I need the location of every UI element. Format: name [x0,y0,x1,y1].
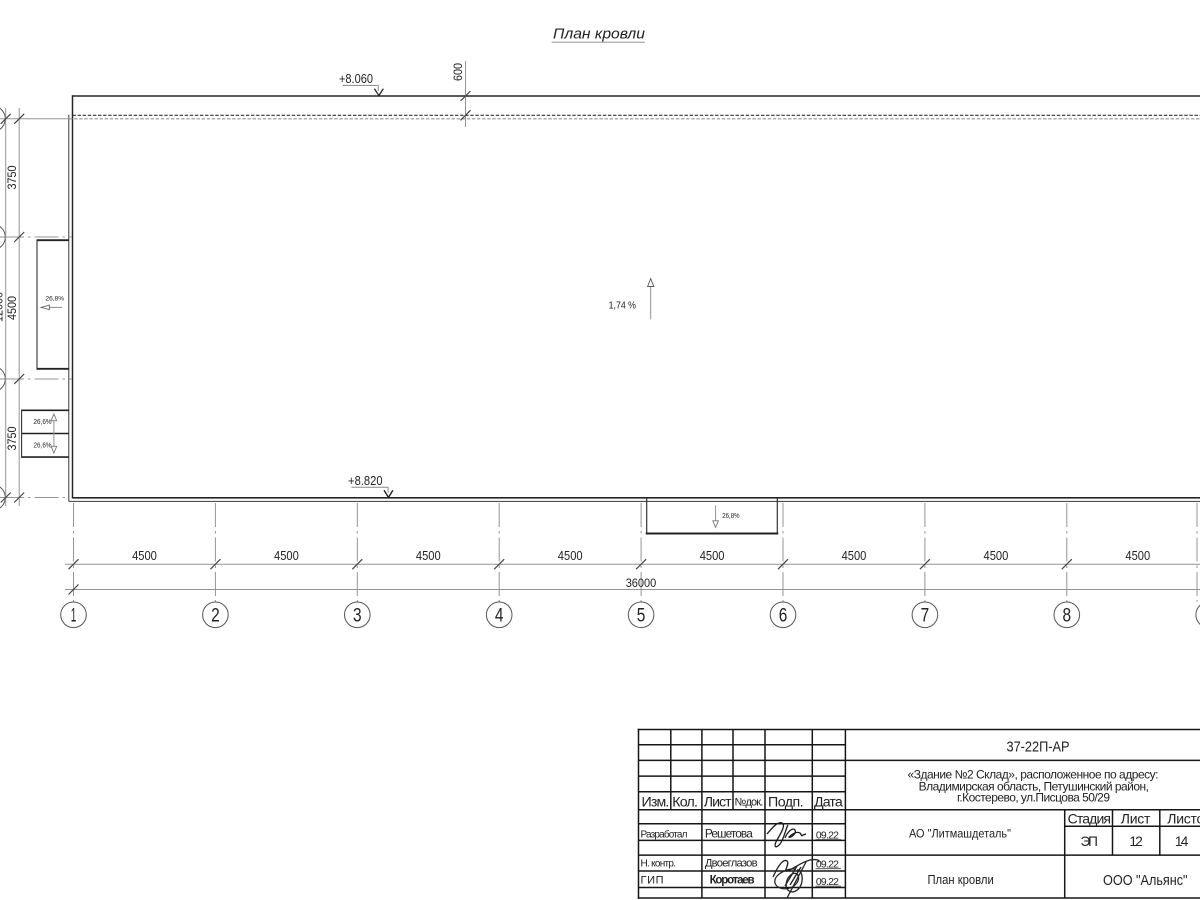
svg-text:ООО "Альянс": ООО "Альянс" [1103,873,1188,889]
svg-text:4500: 4500 [274,549,299,563]
svg-text:Лист: Лист [704,795,732,811]
svg-text:3750: 3750 [5,426,19,450]
svg-text:600: 600 [451,63,465,81]
svg-text:План кровли: План кровли [553,26,646,43]
svg-text:Двоеглазов: Двоеглазов [705,858,758,870]
svg-text:5: 5 [637,605,646,627]
svg-text:Коротаев: Коротаев [710,875,755,887]
svg-text:4500: 4500 [416,549,441,563]
svg-text:3750: 3750 [5,165,19,189]
svg-text:Кол.: Кол. [672,795,698,811]
svg-text:АО "Литмашдеталь": АО "Литмашдеталь" [909,827,1011,841]
svg-text:Решетова: Решетова [705,827,753,841]
svg-text:+8.820: +8.820 [348,474,383,488]
svg-text:26,6%: 26,6% [34,441,53,449]
svg-text:4500: 4500 [842,549,867,563]
svg-text:Листов: Листов [1167,811,1200,827]
svg-text:14: 14 [1175,834,1189,849]
svg-text:6: 6 [779,605,788,627]
svg-text:12: 12 [1129,834,1142,849]
svg-text:Дата: Дата [814,795,843,811]
svg-text:1,74 %: 1,74 % [609,301,636,312]
svg-text:Стадия: Стадия [1068,811,1111,827]
svg-text:26,6%: 26,6% [34,418,53,426]
svg-text:3: 3 [353,605,362,627]
svg-text:4500: 4500 [1125,549,1150,563]
svg-text:+8.060: +8.060 [339,72,373,86]
svg-text:37-22П-АР: 37-22П-АР [1007,740,1070,756]
svg-text:4500: 4500 [984,549,1009,563]
svg-text:Изм.: Изм. [642,795,670,811]
svg-text:Н. контр.: Н. контр. [641,859,677,870]
svg-text:ГИП: ГИП [641,875,664,887]
svg-text:План кровли: План кровли [927,873,993,887]
svg-text:ЭП: ЭП [1080,834,1098,849]
svg-text:1: 1 [71,605,77,627]
svg-text:26,8%: 26,8% [46,296,65,303]
svg-text:4: 4 [495,605,504,627]
svg-text:4500: 4500 [700,549,725,563]
svg-text:Лист: Лист [1121,811,1151,827]
svg-text:Разработал: Разработал [641,829,688,841]
svg-text:4500: 4500 [132,549,157,563]
svg-text:7: 7 [921,605,930,627]
svg-text:Подп.: Подп. [768,795,804,811]
svg-text:26,8%: 26,8% [722,513,739,520]
svg-text:4500: 4500 [558,549,583,563]
svg-text:№док.: №док. [735,797,764,809]
svg-text:4500: 4500 [5,296,19,320]
svg-text:8: 8 [1063,605,1072,627]
svg-text:2: 2 [211,605,220,627]
svg-text:36000: 36000 [626,576,657,590]
svg-text:12000: 12000 [0,292,6,322]
svg-text:г.Костерево, ул.Писцова 50/29: г.Костерево, ул.Писцова 50/29 [957,791,1110,805]
